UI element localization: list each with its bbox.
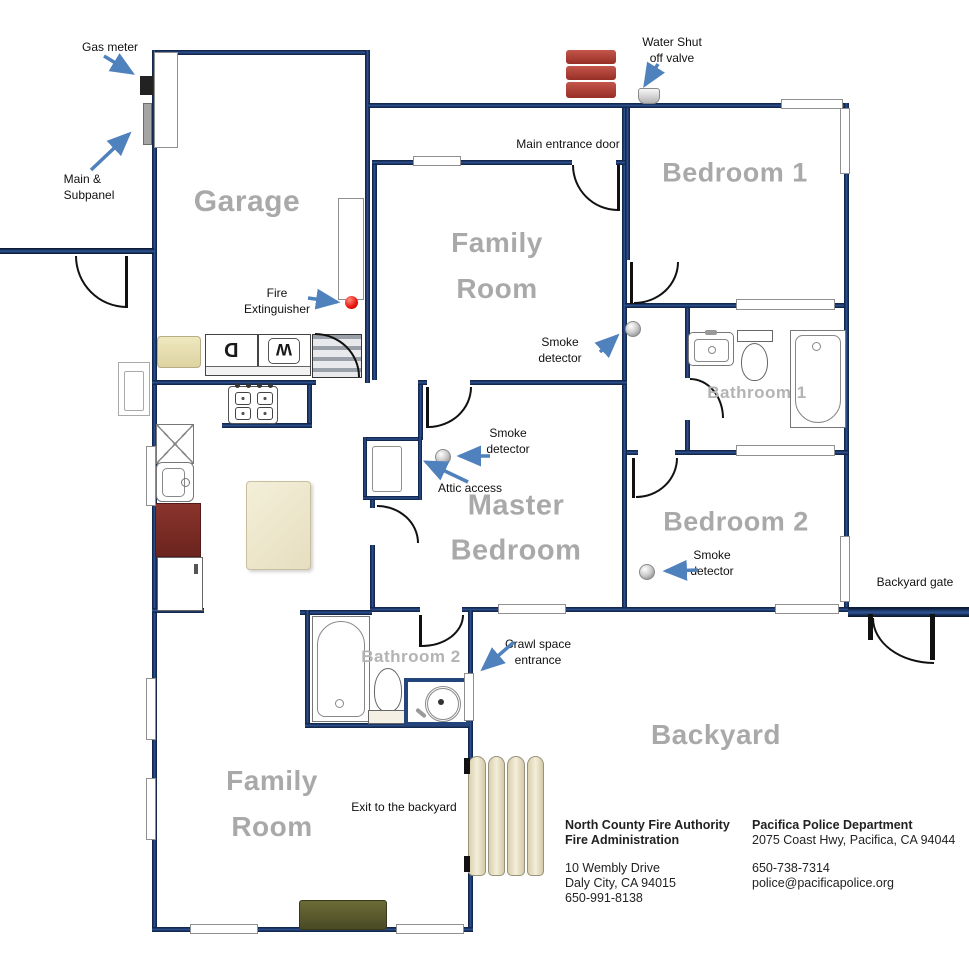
- chimney: [566, 50, 616, 102]
- water-heater-cabinet: [157, 557, 203, 611]
- stove-burner: [257, 407, 273, 420]
- backyard-gate-label: Backyard gate: [877, 574, 954, 590]
- smoke-master-label-line1: Smoke: [486, 425, 529, 441]
- wall-attic-closet-bottom: [363, 496, 422, 500]
- fire-authority-contact: North County Fire Authority Fire Adminis…: [565, 818, 730, 906]
- stove-knob: [246, 383, 251, 388]
- room-label-family-top-2: Room: [456, 273, 537, 305]
- room-label-backyard: Backyard: [651, 719, 781, 751]
- spacer: [752, 848, 955, 861]
- master-door-arc: [428, 387, 472, 428]
- dryer-letter: D: [224, 337, 238, 360]
- fire-authority-phone: 650-991-8138: [565, 891, 730, 906]
- deck-slat: [488, 756, 506, 876]
- window-entry: [413, 156, 461, 166]
- wall-entry-inner: [372, 160, 572, 165]
- bathroom2-toilet-bowl: [374, 668, 402, 712]
- pantry-cabinet: [156, 424, 194, 464]
- smoke-hall-label-line2: detector: [538, 350, 581, 366]
- master-west-door-arc: [377, 505, 419, 543]
- water-valve-label-line1: Water Shut: [642, 34, 702, 50]
- wall-master-bottom-c: [562, 607, 625, 612]
- bathroom2-shower-drain: [438, 699, 444, 705]
- deck-slat: [507, 756, 525, 876]
- main-entrance-door-arc: [572, 165, 618, 211]
- wall-master-bottom-a: [370, 607, 420, 612]
- bathroom1-toilet-bowl: [741, 343, 768, 381]
- stove-knob: [257, 383, 262, 388]
- exit-backyard-label: Exit to the backyard: [351, 799, 456, 815]
- wall-kitchen-top: [152, 380, 316, 385]
- west-utility-box: [118, 362, 150, 416]
- room-label-family-bottom-1: Family: [226, 765, 318, 797]
- water-valve-arrow-icon: [636, 60, 664, 92]
- smoke-master-arrow-icon: [452, 448, 494, 464]
- stove: [228, 386, 278, 424]
- bedroom2-door-arc: [636, 458, 678, 498]
- deck-jamb-top: [464, 758, 470, 774]
- west-utility-door: [124, 371, 144, 411]
- smoke-hall-label-line1: Smoke: [538, 334, 581, 350]
- room-label-family-bottom-2: Room: [231, 811, 312, 843]
- washer-drum: W: [268, 338, 300, 364]
- refrigerator: [155, 503, 201, 557]
- dryer-label: D: [206, 337, 257, 360]
- stove-knob: [235, 383, 240, 388]
- police-email: police@pacificapolice.org: [752, 876, 955, 891]
- stove-burner: [257, 392, 273, 405]
- smoke-bedroom2-arrow-icon: [658, 562, 702, 578]
- washer-dryer-unit: D W: [205, 334, 311, 376]
- bathroom2-shower: [404, 678, 470, 726]
- window-familybottom-south-1: [190, 924, 258, 934]
- wall-master-left-upper: [418, 385, 423, 440]
- room-label-bathroom2: Bathroom 2: [361, 647, 460, 667]
- bathroom2-door-leaf: [419, 615, 422, 647]
- police-phone: 650-738-7314: [752, 861, 955, 876]
- wall-master-left-lower-b: [370, 545, 375, 610]
- smoke-hall-arrow-icon: [596, 328, 626, 358]
- washer-letter: W: [276, 339, 292, 359]
- window-familybottom-south-2: [396, 924, 464, 934]
- bathroom1-toilet-tank: [737, 330, 773, 342]
- stove-burner: [235, 392, 251, 405]
- closet-slider-hall-bottom: [736, 445, 835, 456]
- kitchen-sink-faucet: [181, 478, 190, 487]
- floor-plan: D W: [0, 0, 969, 960]
- stove-knob: [268, 383, 273, 388]
- backyard-gate-arc: [872, 618, 934, 664]
- bathroom2-door-arc: [422, 615, 464, 647]
- chimney-brick: [566, 50, 616, 64]
- spacer: [565, 848, 730, 861]
- bathroom2-toilet: [368, 668, 408, 726]
- bathroom1-bathtub-drain: [812, 342, 821, 351]
- wall-bathroom2-top: [300, 610, 372, 615]
- master-door-leaf: [426, 387, 429, 428]
- fire-extinguisher-arrow-icon: [304, 292, 346, 308]
- deck-slat: [527, 756, 545, 876]
- chimney-brick: [566, 82, 616, 98]
- subpanel-label-line2: Subpanel: [64, 187, 115, 203]
- wall-bedroom1-left: [625, 108, 630, 260]
- backyard-gate-post-left: [868, 614, 873, 640]
- window-kitchen-west: [146, 446, 156, 506]
- deck-slat: [468, 756, 486, 876]
- west-yard-gate-leaf: [125, 256, 128, 308]
- bathroom2-bathtub: [312, 616, 370, 722]
- wall-bathroom1-bottom-b: [675, 450, 740, 455]
- wall-north-outer: [368, 103, 848, 108]
- garage-furnace: [338, 198, 364, 300]
- smoke-bedroom2-label-line1: Smoke: [690, 547, 733, 563]
- room-label-bedroom1: Bedroom 1: [662, 158, 808, 189]
- main-entrance-label: Main entrance door: [516, 136, 619, 152]
- stove-burner: [235, 407, 251, 420]
- closet-slider-hall-top: [736, 299, 835, 310]
- garage-bin: [157, 336, 201, 368]
- bathroom1-sink-drain: [708, 346, 716, 354]
- room-label-master-2: Bedroom: [451, 535, 582, 568]
- wall-west-yard: [0, 248, 154, 254]
- bathroom1-sink-faucet: [705, 330, 717, 335]
- bathroom1-bathtub: [790, 330, 846, 428]
- wall-attic-closet-left: [363, 437, 367, 500]
- room-label-garage: Garage: [194, 185, 300, 219]
- fire-extinguisher-dot: [345, 296, 358, 309]
- window-north-east: [781, 99, 843, 109]
- bedroom1-door-leaf: [630, 262, 633, 304]
- window-familybottom-west-2: [146, 778, 156, 840]
- backyard-deck-steps: [467, 756, 545, 876]
- window-master-south: [498, 604, 566, 614]
- window-bedroom2-south: [775, 604, 839, 614]
- wall-garage-right: [365, 50, 370, 383]
- subpanel-label: Main & Subpanel: [64, 171, 115, 203]
- smoke-hall-label: Smoke detector: [538, 334, 581, 366]
- fire-authority-org: North County Fire Authority: [565, 818, 730, 833]
- wall-master-top-b: [470, 380, 627, 385]
- west-yard-gate-arc: [75, 256, 127, 308]
- police-address: 2075 Coast Hwy, Pacifica, CA 94044: [752, 833, 955, 848]
- wall-stove-nook-right: [307, 385, 312, 428]
- gas-meter-arrow-icon: [100, 52, 144, 82]
- wall-bathroom2-right-a: [468, 610, 473, 677]
- crawl-space-arrow-icon: [474, 638, 518, 678]
- fire-authority-address2: Daly City, CA 94015: [565, 876, 730, 891]
- crawl-space-hatch: [464, 673, 474, 721]
- wall-attic-closet-top: [363, 437, 422, 441]
- fire-authority-dept: Fire Administration: [565, 833, 730, 848]
- wall-familybottom-right-b: [468, 873, 473, 932]
- wall-bedroom1-bottom-a: [625, 303, 740, 308]
- deck-jamb-bottom: [464, 856, 470, 872]
- window-familybottom-west-1: [146, 678, 156, 740]
- backyard-fence: [848, 607, 969, 617]
- wall-master-right: [622, 385, 627, 612]
- wall-garage-top: [152, 50, 370, 55]
- wall-bathroom1-bottom-c: [833, 450, 848, 455]
- washer-dryer-controls: [206, 366, 310, 375]
- wall-bathroom2-left: [305, 610, 310, 728]
- fire-authority-address1: 10 Wembly Drive: [565, 861, 730, 876]
- bathroom2-bathtub-drain: [335, 699, 344, 708]
- room-label-bathroom1: Bathroom 1: [707, 383, 806, 403]
- subpanel-box: [143, 103, 152, 145]
- backyard-gate-post-right: [930, 614, 935, 660]
- garage-door-panel: [154, 52, 178, 148]
- wall-familytop-left: [372, 165, 377, 380]
- window-bedroom2-east: [840, 536, 850, 602]
- bathroom1-sink: [688, 332, 734, 366]
- main-entrance-door-leaf: [617, 165, 620, 211]
- kitchen-island: [246, 481, 311, 570]
- bathroom2-toilet-base: [368, 710, 408, 724]
- police-contact: Pacifica Police Department 2075 Coast Hw…: [752, 818, 955, 891]
- fire-extinguisher-label: Fire Extinguisher: [244, 285, 310, 317]
- chimney-brick: [566, 66, 616, 80]
- subpanel-arrow-icon: [85, 128, 137, 174]
- smoke-detector-hall: [625, 321, 641, 337]
- police-org: Pacifica Police Department: [752, 818, 955, 833]
- bedroom1-door-arc: [634, 262, 679, 304]
- room-label-bedroom2: Bedroom 2: [663, 507, 809, 538]
- window-bedroom1-east: [840, 108, 850, 174]
- door-mat: [299, 900, 387, 930]
- room-label-family-top-1: Family: [451, 227, 543, 259]
- bedroom2-door-leaf: [632, 458, 635, 498]
- fire-extinguisher-label-line1: Fire: [244, 285, 310, 301]
- smoke-detector-bedroom2: [639, 564, 655, 580]
- kitchen-sink: [156, 462, 194, 502]
- attic-closet-door: [372, 446, 402, 492]
- fire-extinguisher-label-line2: Extinguisher: [244, 301, 310, 317]
- water-heater-handle: [194, 564, 198, 574]
- bathroom1-toilet: [737, 330, 773, 382]
